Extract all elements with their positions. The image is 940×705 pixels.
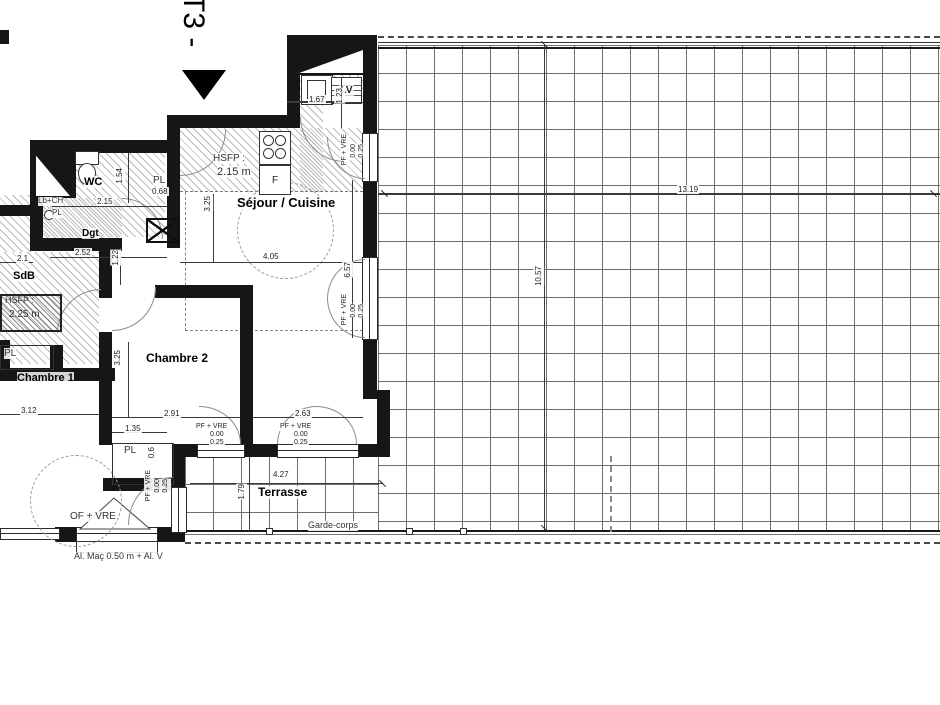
- dim-line-roof-depth: [544, 45, 545, 531]
- railing-post: [460, 528, 467, 535]
- dim-ch2-extra: 1.35: [124, 424, 142, 433]
- closet-label-ch1-top: PL: [4, 348, 16, 359]
- window-swing-arc: [316, 406, 357, 444]
- dim-line: [128, 153, 129, 203]
- pf-vre-label: PF + VRE: [195, 423, 228, 431]
- burner: [275, 148, 286, 159]
- wall-segment: [363, 180, 377, 258]
- burner: [275, 135, 286, 146]
- hsfp-sejour-label: HSFP :: [213, 153, 245, 164]
- dim-sejour-lower-w: 2.63: [294, 409, 312, 418]
- dim-kitchen-counter-w: 1.67: [308, 95, 326, 104]
- dim-line: [128, 342, 129, 417]
- dim-wc-w: 2.15: [96, 197, 114, 206]
- room-label-terrasse: Terrasse: [258, 486, 307, 499]
- plan-type-label: T3 -: [176, 0, 210, 47]
- dim-terrasse-d: 1.79: [236, 484, 247, 500]
- hsfp-sdb-label: HSFP :: [5, 296, 34, 306]
- pf-vre-label: PF + VRE: [279, 423, 312, 431]
- burner: [263, 135, 274, 146]
- wall-segment: [363, 35, 377, 133]
- closet-hall-width: 0.68: [151, 187, 169, 196]
- dim-line: [50, 257, 167, 258]
- lbch-label: Lb+CH: [38, 197, 63, 206]
- railing-post: [266, 528, 273, 535]
- dim-line: [180, 262, 363, 263]
- pf-vre-sill25: 0.25: [293, 439, 309, 447]
- hsfp-sdb-value: 2.25 m: [9, 309, 40, 320]
- garde-corps-label: Garde-corps: [308, 521, 358, 531]
- wall-segment: [287, 35, 300, 117]
- dim-line: [0, 414, 100, 415]
- hsfp-sejour-value: 2.15 m: [217, 166, 251, 178]
- pf-vre-sill25: 0.25: [357, 144, 367, 158]
- dim-wc-d: 1.54: [114, 168, 125, 184]
- pf-vre-sill25: 0.25: [357, 304, 367, 318]
- dim-sejour-d: 3.25: [202, 196, 213, 212]
- north-triangle: [182, 70, 226, 100]
- burner: [263, 148, 274, 159]
- allege-label: Al. Maç 0.50 m + Al. V: [74, 552, 163, 562]
- pf-vre-sill0: 0.00: [209, 431, 225, 439]
- door-swing-arc: [112, 287, 156, 331]
- terrace-limit-dashed: [610, 456, 612, 532]
- closet-ch1-width: 0.6: [146, 447, 157, 458]
- floor-plan-canvas: 13.19 10.57: [0, 0, 940, 705]
- wall-segment: [155, 285, 253, 298]
- room-label-dgt: Dgt: [82, 228, 99, 239]
- room-label-chambre2: Chambre 2: [146, 352, 208, 365]
- dim-dgt-w: 2.52: [74, 248, 92, 257]
- room-label-chambre1: Chambre 1: [17, 372, 74, 384]
- window-chambre1-right: [171, 487, 187, 533]
- closet-label-ch1: PL: [124, 445, 136, 456]
- dim-line: [190, 483, 383, 484]
- dim-line-roof-width: [378, 193, 940, 195]
- dim-sejour-right: 6.57: [342, 262, 353, 278]
- wall-segment: [357, 444, 390, 457]
- dim-ch1-w: 3.12: [20, 406, 38, 415]
- turning-circle: [30, 455, 122, 547]
- oven-label: F: [272, 175, 278, 186]
- closet-label-hall: PL: [153, 175, 165, 186]
- window-sejour-bottom: [277, 444, 359, 458]
- room-label-sejour: Séjour / Cuisine: [237, 196, 335, 210]
- dim-ch2-d: 3.25: [112, 350, 123, 366]
- wall-segment: [363, 338, 377, 398]
- roof-edge-line: [378, 42, 940, 49]
- pf-vre-sill0: 0.00: [293, 431, 309, 439]
- oven-box: F: [259, 165, 291, 195]
- bottom-dashed-line: [185, 542, 940, 544]
- dim-sejour-w: 4.05: [262, 252, 280, 261]
- wall-segment: [167, 115, 300, 128]
- wall-segment: [243, 444, 277, 457]
- dim-ch2-w: 2.91: [163, 409, 181, 418]
- railing-line-2: [185, 534, 940, 535]
- wall-segment: [0, 30, 9, 44]
- wall-segment: [0, 205, 35, 216]
- dim-kitchen-counter-d: 1.23: [334, 88, 345, 104]
- closet-label-wc-niche: PL: [52, 209, 62, 218]
- roof-terrace-grid: [378, 45, 940, 532]
- room-label-wc: WC: [84, 176, 102, 188]
- pf-vre-sill25: 0.25: [161, 479, 171, 493]
- dim-dgt-d: 1.22: [110, 250, 121, 266]
- of-vre-label: OF + VRE: [70, 511, 116, 522]
- dim-line: [249, 457, 250, 531]
- room-label-sdb: SdB: [13, 270, 35, 282]
- railing-post: [406, 528, 413, 535]
- hatch-left-strip: [0, 195, 33, 252]
- pf-vre-sill25: 0.25: [209, 439, 225, 447]
- dim-roof-depth: 10.57: [533, 266, 544, 286]
- dim-balcony-left: 2.1: [16, 254, 29, 263]
- wall-segment: [240, 298, 253, 445]
- duct-box: [146, 218, 179, 243]
- roof-edge-dashed-line: [378, 36, 940, 38]
- dim-roof-width: 13.19: [677, 185, 699, 194]
- hsfp-boundary-dashed-h2: [185, 330, 363, 331]
- railing-line: [185, 530, 940, 532]
- wall-segment: [99, 332, 112, 445]
- dim-terrasse-w: 4.27: [272, 470, 290, 479]
